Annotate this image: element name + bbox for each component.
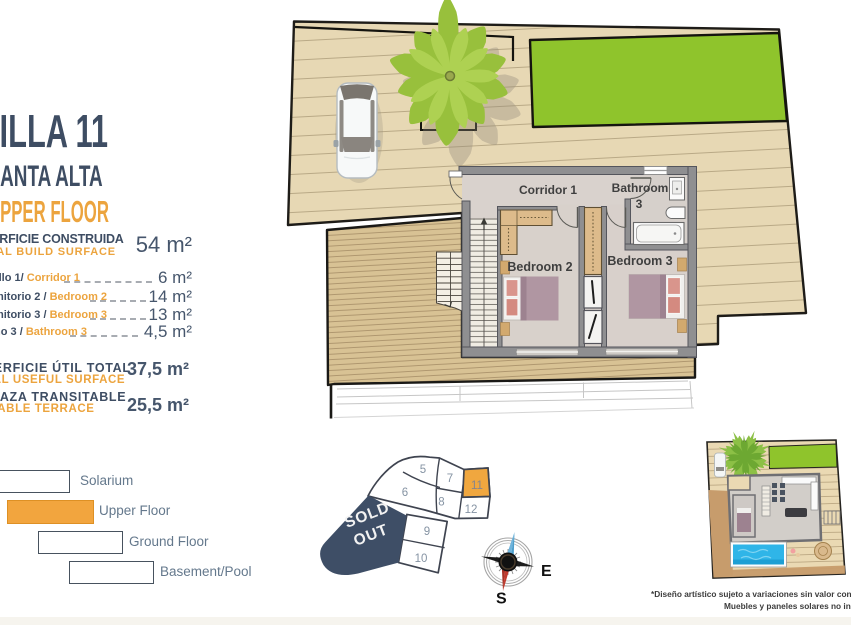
svg-text:10: 10 — [415, 553, 428, 565]
svg-text:Bedroom 3: Bedroom 3 — [607, 254, 672, 268]
svg-text:5: 5 — [420, 464, 426, 476]
svg-text:6: 6 — [402, 487, 408, 499]
svg-text:7: 7 — [447, 473, 453, 485]
svg-text:9: 9 — [424, 526, 430, 538]
svg-text:8: 8 — [438, 497, 444, 509]
svg-text:11: 11 — [471, 480, 483, 492]
svg-text:12: 12 — [465, 504, 478, 516]
svg-text:3: 3 — [636, 197, 643, 211]
svg-text:Bedroom 2: Bedroom 2 — [507, 260, 572, 274]
svg-text:E: E — [541, 563, 552, 580]
svg-text:S: S — [496, 591, 507, 608]
svg-text:Corridor 1: Corridor 1 — [519, 183, 577, 197]
svg-text:Bathroom: Bathroom — [612, 181, 669, 195]
